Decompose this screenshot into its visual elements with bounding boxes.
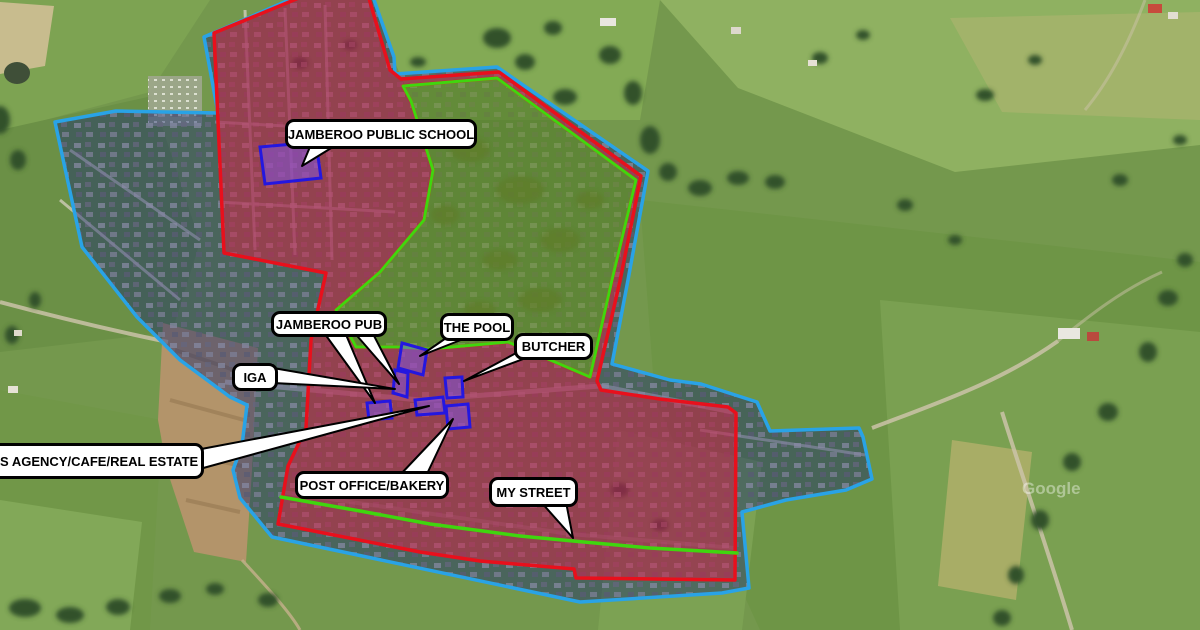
label-news-agency-cafe-real-estate: WS AGENCY/CAFE/REAL ESTATE <box>0 443 204 479</box>
label-iga: IGA <box>232 363 278 391</box>
label-jamberoo-pub: JAMBEROO PUB <box>271 311 387 337</box>
google-watermark: Google <box>1022 479 1081 498</box>
label-post-office-bakery: POST OFFICE/BAKERY <box>295 471 449 499</box>
label-jamberoo-public-school: JAMBEROO PUBLIC SCHOOL <box>285 119 477 149</box>
iga-building-marker <box>393 370 408 397</box>
label-my-street: MY STREET <box>489 477 578 507</box>
label-the-pool: THE POOL <box>440 313 514 341</box>
butcher-building-marker <box>445 377 463 398</box>
map-canvas[interactable]: Google JAMBEROO PUBLIC SCHOOL JAMBEROO P… <box>0 0 1200 630</box>
label-butcher: BUTCHER <box>514 333 593 360</box>
satellite-basemap: Google <box>0 0 1200 630</box>
